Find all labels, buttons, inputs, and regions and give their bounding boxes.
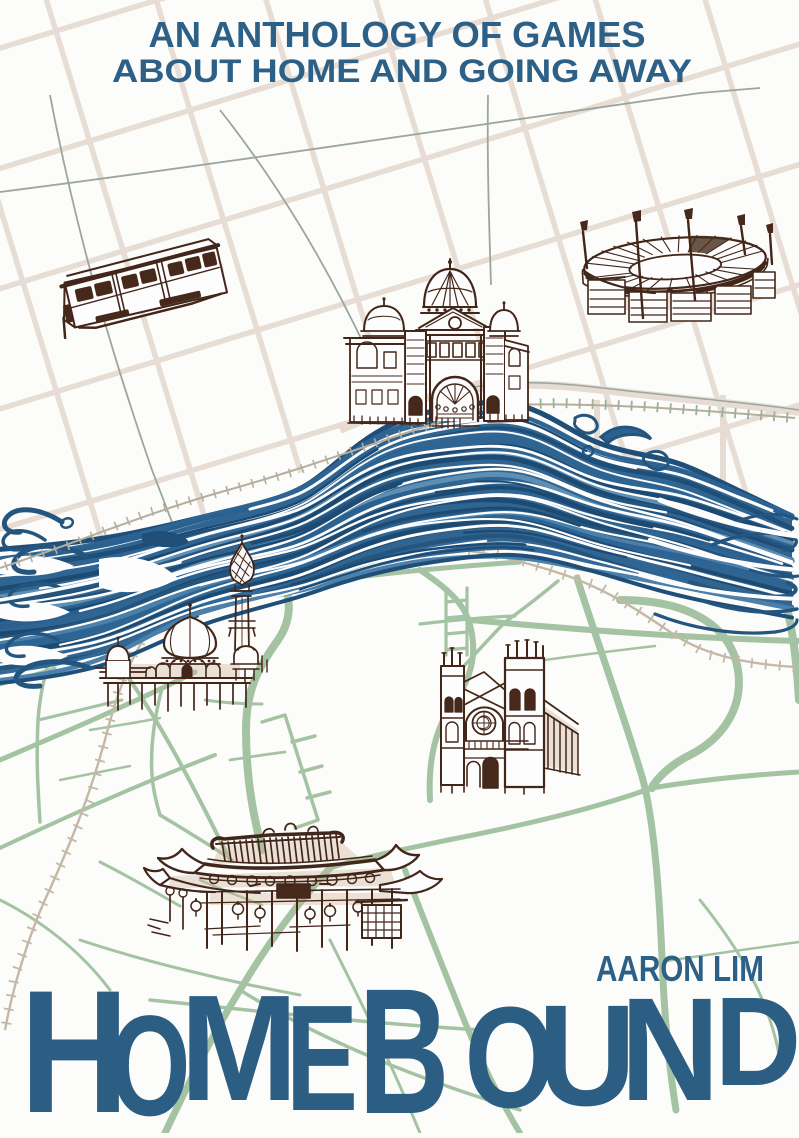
svg-text:O: O <box>110 987 191 1133</box>
svg-text:N: N <box>620 968 720 1132</box>
svg-text:D: D <box>715 972 799 1112</box>
svg-text:B: B <box>359 951 450 1133</box>
svg-text:M: M <box>180 964 298 1133</box>
svg-text:ABOUT HOME AND GOING AWAY: ABOUT HOME AND GOING AWAY <box>112 53 692 89</box>
svg-text:AN ANTHOLOGY OF GAMES: AN ANTHOLOGY OF GAMES <box>149 14 646 55</box>
svg-text:E: E <box>286 973 358 1133</box>
